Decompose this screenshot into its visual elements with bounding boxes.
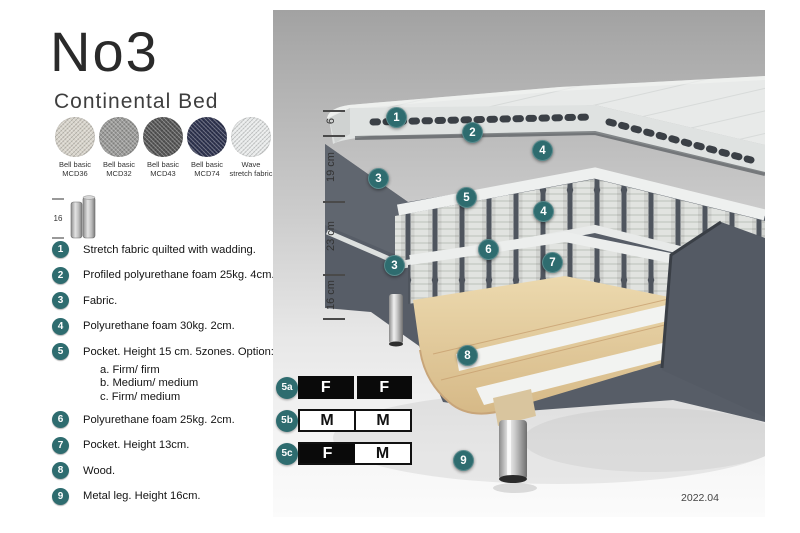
- fabric-swatch: Bell basic MCD43: [141, 117, 185, 178]
- firmness-table: M M: [298, 409, 412, 432]
- firmness-table: F F: [298, 376, 412, 399]
- firmness-row-5a: 5a F F: [276, 376, 412, 399]
- legend-number-badge: 1: [52, 241, 69, 258]
- callout-3: 3: [368, 168, 389, 189]
- fabric-swatch-circle: [231, 117, 271, 157]
- legend-option: a. Firm/ firm: [100, 364, 284, 378]
- firmness-cell: F: [298, 376, 354, 399]
- leg-height-value: 16: [54, 214, 63, 223]
- firmness-row-5c: 5c F M: [276, 442, 412, 465]
- fabric-swatch-label: Bell basic MCD74: [184, 160, 230, 178]
- callout-7: 7: [542, 252, 563, 273]
- scale-label: 6: [325, 101, 337, 141]
- swatch-code: MCD74: [194, 169, 219, 178]
- legend-item-text: Pocket. Height 13cm.: [83, 439, 189, 451]
- firmness-cell: M: [300, 411, 356, 430]
- swatch-code: MCD32: [106, 169, 131, 178]
- legend-item: 4 Polyurethane foam 30kg. 2cm.: [52, 318, 284, 335]
- back-leg: [389, 294, 403, 347]
- fabric-swatch-circle: [55, 117, 95, 157]
- swatch-name: Bell basic: [191, 160, 223, 169]
- legend-option: c. Firm/ medium: [100, 391, 284, 405]
- fabric-swatch: Bell basic MCD32: [97, 117, 141, 178]
- legend-item: 9 Metal leg. Height 16cm.: [52, 488, 284, 505]
- legend-number-badge: 8: [52, 462, 69, 479]
- bed-illustration: [273, 10, 765, 517]
- leg-dimension-icon: 16: [46, 190, 112, 246]
- scale-tick: [323, 318, 345, 320]
- callout-5: 5: [456, 187, 477, 208]
- legend-item: 7 Pocket. Height 13cm.: [52, 437, 284, 454]
- fabric-swatch-label: Bell basic MCD32: [96, 160, 142, 178]
- callout-2: 2: [462, 122, 483, 143]
- legend-item-text: Pocket. Height 15 cm. 5zones. Option:: [83, 346, 274, 358]
- legend-item: 8 Wood.: [52, 462, 284, 479]
- firmness-badge: 5a: [276, 377, 298, 399]
- version-stamp: 2022.04: [681, 492, 719, 504]
- firmness-cell: F: [357, 376, 413, 399]
- callout-4b: 4: [533, 201, 554, 222]
- scale-label: 16 cm: [325, 275, 337, 315]
- legend-item: 2 Profiled polyurethane foam 25kg. 4cm.: [52, 267, 284, 284]
- legend-number-badge: 6: [52, 411, 69, 428]
- legend-number-badge: 5: [52, 343, 69, 360]
- fabric-swatch-label: Bell basic MCD43: [140, 160, 186, 178]
- legend-option: b. Medium/ medium: [100, 377, 284, 391]
- legend-number-badge: 4: [52, 318, 69, 335]
- legend-item-text: Metal leg. Height 16cm.: [83, 490, 201, 502]
- callout-3b: 3: [384, 255, 405, 276]
- swatch-name: Bell basic: [103, 160, 135, 169]
- firmness-badge: 5c: [276, 443, 298, 465]
- legend-number-badge: 7: [52, 437, 69, 454]
- scale-label: 23 cm: [325, 216, 337, 256]
- firmness-cell: M: [355, 444, 410, 463]
- callout-6: 6: [478, 239, 499, 260]
- legend-item-options: a. Firm/ firm b. Medium/ medium c. Firm/…: [100, 364, 284, 405]
- legend-item-text: Stretch fabric quilted with wadding.: [83, 244, 256, 256]
- fabric-swatch-circle: [187, 117, 227, 157]
- firmness-badge: 5b: [276, 410, 298, 432]
- swatch-code: MCD43: [150, 169, 175, 178]
- page-title: No3: [50, 24, 159, 80]
- fabric-swatch-label: Wave stretch fabric: [228, 160, 274, 178]
- fabric-swatches: Bell basic MCD36 Bell basic MCD32 Bell b…: [53, 117, 273, 178]
- legend-number-badge: 9: [52, 488, 69, 505]
- swatch-name: Bell basic: [147, 160, 179, 169]
- swatch-code: stretch fabric: [230, 169, 273, 178]
- callout-9: 9: [453, 450, 474, 471]
- scale-label: 19 cm: [325, 147, 337, 187]
- callout-1: 1: [386, 107, 407, 128]
- fabric-swatch: Bell basic MCD74: [185, 117, 229, 178]
- callout-8: 8: [457, 345, 478, 366]
- legend-item-text: Wood.: [83, 465, 115, 477]
- swatch-code: MCD36: [62, 169, 87, 178]
- legend-number-badge: 3: [52, 292, 69, 309]
- page: No3 Continental Bed Bell basic MCD36 Bel…: [0, 0, 800, 533]
- legend-item: 1 Stretch fabric quilted with wadding.: [52, 241, 284, 258]
- firmness-table: F M: [298, 442, 412, 465]
- diagram-panel: 6 19 cm 23 cm 16 cm 1 2 4 3 5 4 6 7 3 8 …: [273, 10, 765, 517]
- fabric-swatch-label: Bell basic MCD36: [52, 160, 98, 178]
- callout-4: 4: [532, 140, 553, 161]
- page-subtitle: Continental Bed: [54, 90, 218, 114]
- scale-tick: [323, 201, 345, 203]
- legend-item: 3 Fabric.: [52, 292, 284, 309]
- fabric-swatch: Bell basic MCD36: [53, 117, 97, 178]
- legend-list: 1 Stretch fabric quilted with wadding. 2…: [52, 241, 284, 513]
- legend-item: 6 Polyurethane foam 25kg. 2cm.: [52, 411, 284, 428]
- legend-item-text: Polyurethane foam 30kg. 2cm.: [83, 320, 235, 332]
- legend-number-badge: 2: [52, 267, 69, 284]
- fabric-swatch-circle: [99, 117, 139, 157]
- legend-item: 5 Pocket. Height 15 cm. 5zones. Option:: [52, 343, 284, 360]
- fabric-swatch: Wave stretch fabric: [229, 117, 273, 178]
- legend-item-text: Profiled polyurethane foam 25kg. 4cm.: [83, 269, 275, 281]
- swatch-name: Wave: [242, 160, 261, 169]
- legend-item-text: Fabric.: [83, 295, 117, 307]
- legend-item-text: Polyurethane foam 25kg. 2cm.: [83, 414, 235, 426]
- fabric-swatch-circle: [143, 117, 183, 157]
- firmness-cell: F: [300, 444, 355, 463]
- firmness-cell: M: [356, 411, 410, 430]
- swatch-name: Bell basic: [59, 160, 91, 169]
- firmness-row-5b: 5b M M: [276, 409, 412, 432]
